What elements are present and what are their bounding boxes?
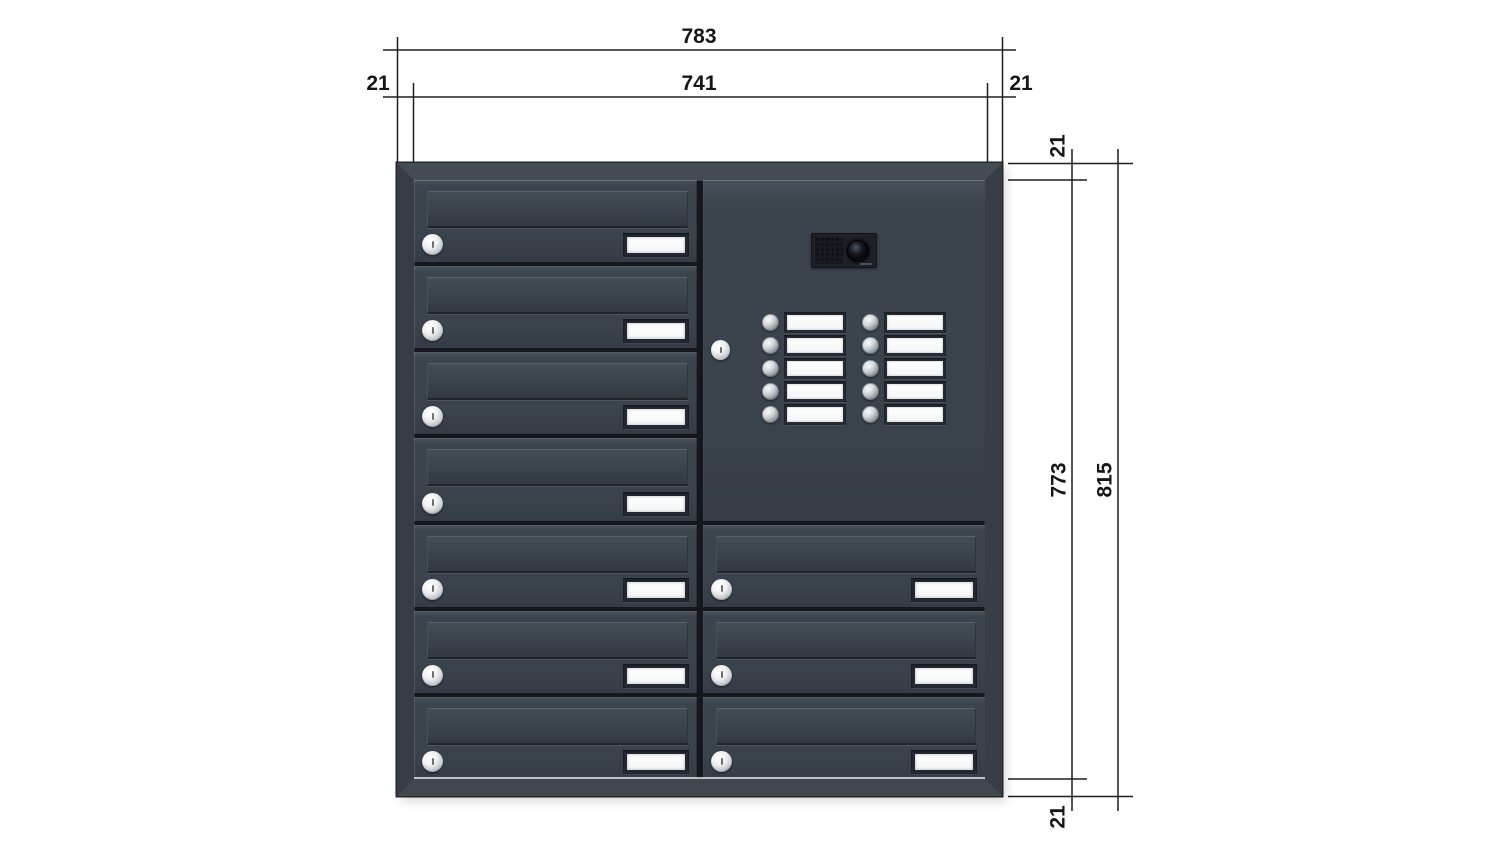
lock-cylinder	[422, 234, 443, 255]
name-plate	[627, 668, 685, 684]
bell-button	[862, 406, 879, 423]
right-door-column	[703, 180, 985, 779]
panel-lock-cylinder	[711, 340, 730, 360]
bell-row	[862, 358, 946, 379]
bell-name-plate	[887, 315, 943, 330]
bell-row	[762, 335, 846, 356]
bell-row	[762, 381, 846, 402]
bell-name-plate-bezel	[784, 404, 846, 425]
name-plate	[915, 668, 973, 684]
name-plate	[627, 754, 685, 770]
mailbox-door	[414, 611, 697, 693]
bell-row	[762, 312, 846, 333]
camera-lens-icon	[847, 240, 869, 262]
bell-button	[762, 383, 779, 400]
dim-label-inner-height: 773	[1047, 462, 1070, 497]
intercom-panel	[703, 180, 985, 521]
bell-name-plate	[787, 361, 843, 376]
name-plate	[627, 323, 685, 339]
bell-name-plate	[787, 384, 843, 399]
left-door-column	[414, 180, 697, 779]
bell-name-plate-bezel	[784, 381, 846, 402]
name-plate	[915, 754, 973, 770]
product-diagram: 783 741 21 21 21 773 815 21	[0, 0, 1500, 856]
name-plate-bezel	[623, 750, 689, 774]
mailbox-door	[414, 180, 697, 262]
dim-label-right-margin: 21	[1009, 72, 1033, 95]
name-plate-bezel	[623, 664, 689, 688]
letter-slot	[716, 536, 976, 573]
bell-button	[762, 337, 779, 354]
letter-slot	[427, 277, 688, 314]
mailbox-door	[703, 611, 985, 693]
bell-name-plate	[887, 361, 943, 376]
bell-button	[762, 360, 779, 377]
mailbox-door	[703, 697, 985, 779]
mailbox-door	[414, 697, 697, 779]
dim-label-inner-width: 741	[681, 72, 716, 95]
bell-row	[862, 312, 946, 333]
letter-slot	[427, 622, 688, 659]
name-plate-bezel	[623, 492, 689, 516]
bell-button	[862, 383, 879, 400]
bell-row	[862, 404, 946, 425]
letter-slot	[716, 708, 976, 745]
bell-name-plate	[887, 338, 943, 353]
bell-name-plate-bezel	[784, 312, 846, 333]
bell-name-plate-bezel	[884, 404, 946, 425]
name-plate-bezel	[911, 750, 977, 774]
lock-cylinder	[422, 579, 443, 600]
name-plate-bezel	[623, 578, 689, 602]
bell-name-plate	[787, 407, 843, 422]
name-plate	[627, 237, 685, 253]
dim-label-overall-width: 783	[681, 25, 716, 48]
bell-name-plate	[787, 338, 843, 353]
bell-row	[862, 335, 946, 356]
letter-slot	[427, 191, 688, 228]
bell-name-plate	[787, 315, 843, 330]
name-plate-bezel	[623, 405, 689, 429]
name-plate-bezel	[623, 233, 689, 257]
name-plate	[915, 582, 973, 598]
lock-cylinder	[711, 579, 732, 600]
name-plate-bezel	[911, 578, 977, 602]
lock-cylinder	[711, 751, 732, 772]
lock-cylinder	[422, 406, 443, 427]
bell-name-plate-bezel	[784, 358, 846, 379]
speaker-grille	[815, 237, 843, 264]
bell-button	[862, 314, 879, 331]
bell-name-plate-bezel	[784, 335, 846, 356]
mailbox-door	[414, 438, 697, 520]
intercom-camera	[811, 233, 877, 268]
letter-slot	[427, 363, 688, 400]
name-plate	[627, 582, 685, 598]
mailbox-cabinet	[397, 163, 1002, 796]
name-plate	[627, 409, 685, 425]
dim-label-bottom-margin: 21	[1046, 805, 1069, 829]
mailbox-door	[414, 525, 697, 607]
letter-slot	[427, 449, 688, 486]
lock-cylinder	[711, 665, 732, 686]
bell-name-plate-bezel	[884, 358, 946, 379]
lock-cylinder	[422, 665, 443, 686]
mailbox-door	[414, 352, 697, 434]
cabinet-inner	[414, 180, 985, 779]
name-plate-bezel	[623, 319, 689, 343]
bell-name-plate-bezel	[884, 312, 946, 333]
dim-label-top-margin: 21	[1046, 134, 1069, 158]
bell-row	[862, 381, 946, 402]
bell-name-plate-bezel	[884, 381, 946, 402]
dim-label-left-margin: 21	[366, 72, 390, 95]
bell-button-column	[762, 312, 846, 425]
bell-row	[762, 404, 846, 425]
bell-button	[762, 314, 779, 331]
lock-cylinder	[422, 320, 443, 341]
letter-slot	[427, 708, 688, 745]
bell-button	[762, 406, 779, 423]
bell-name-plate	[887, 407, 943, 422]
letter-slot	[716, 622, 976, 659]
lock-cylinder	[422, 751, 443, 772]
camera-brand-mark	[860, 263, 872, 265]
bell-name-plate	[887, 384, 943, 399]
mailbox-door	[703, 525, 985, 607]
bell-button	[862, 337, 879, 354]
name-plate	[627, 496, 685, 512]
bell-button-column	[862, 312, 946, 425]
bell-row	[762, 358, 846, 379]
mailbox-door	[414, 266, 697, 348]
lock-cylinder	[422, 493, 443, 514]
bell-button	[862, 360, 879, 377]
bell-name-plate-bezel	[884, 335, 946, 356]
letter-slot	[427, 536, 688, 573]
name-plate-bezel	[911, 664, 977, 688]
dim-label-overall-height: 815	[1093, 462, 1116, 497]
